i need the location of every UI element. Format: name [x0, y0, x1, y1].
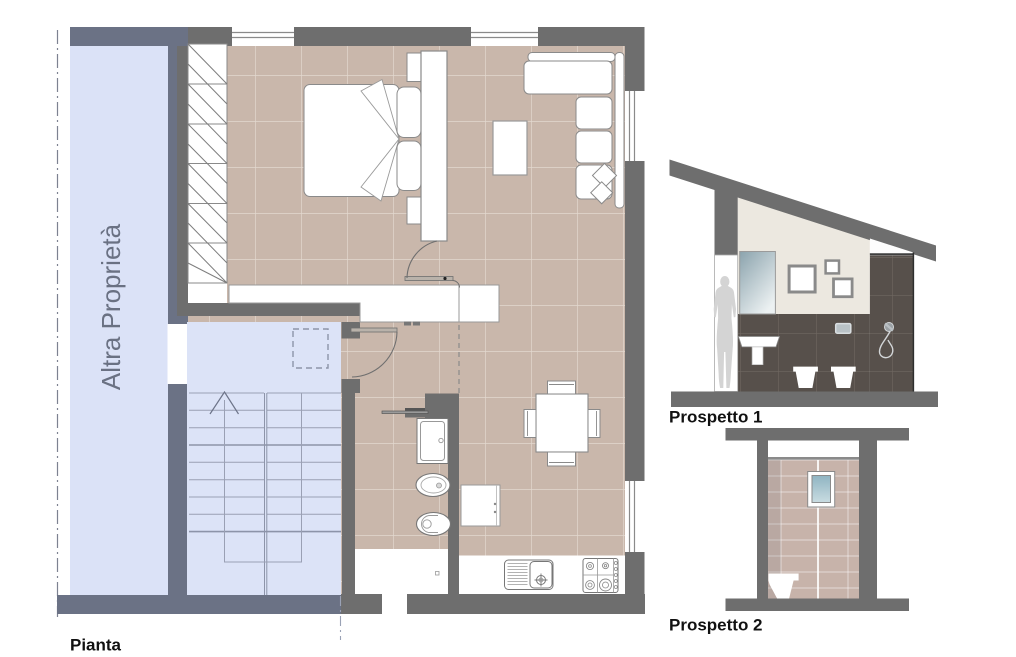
- svg-text:Prospetto 2: Prospetto 2: [669, 616, 763, 635]
- svg-text:Altra Proprietà: Altra Proprietà: [96, 223, 126, 390]
- svg-text:Pianta: Pianta: [70, 636, 122, 655]
- svg-text:Prospetto 1: Prospetto 1: [669, 408, 763, 427]
